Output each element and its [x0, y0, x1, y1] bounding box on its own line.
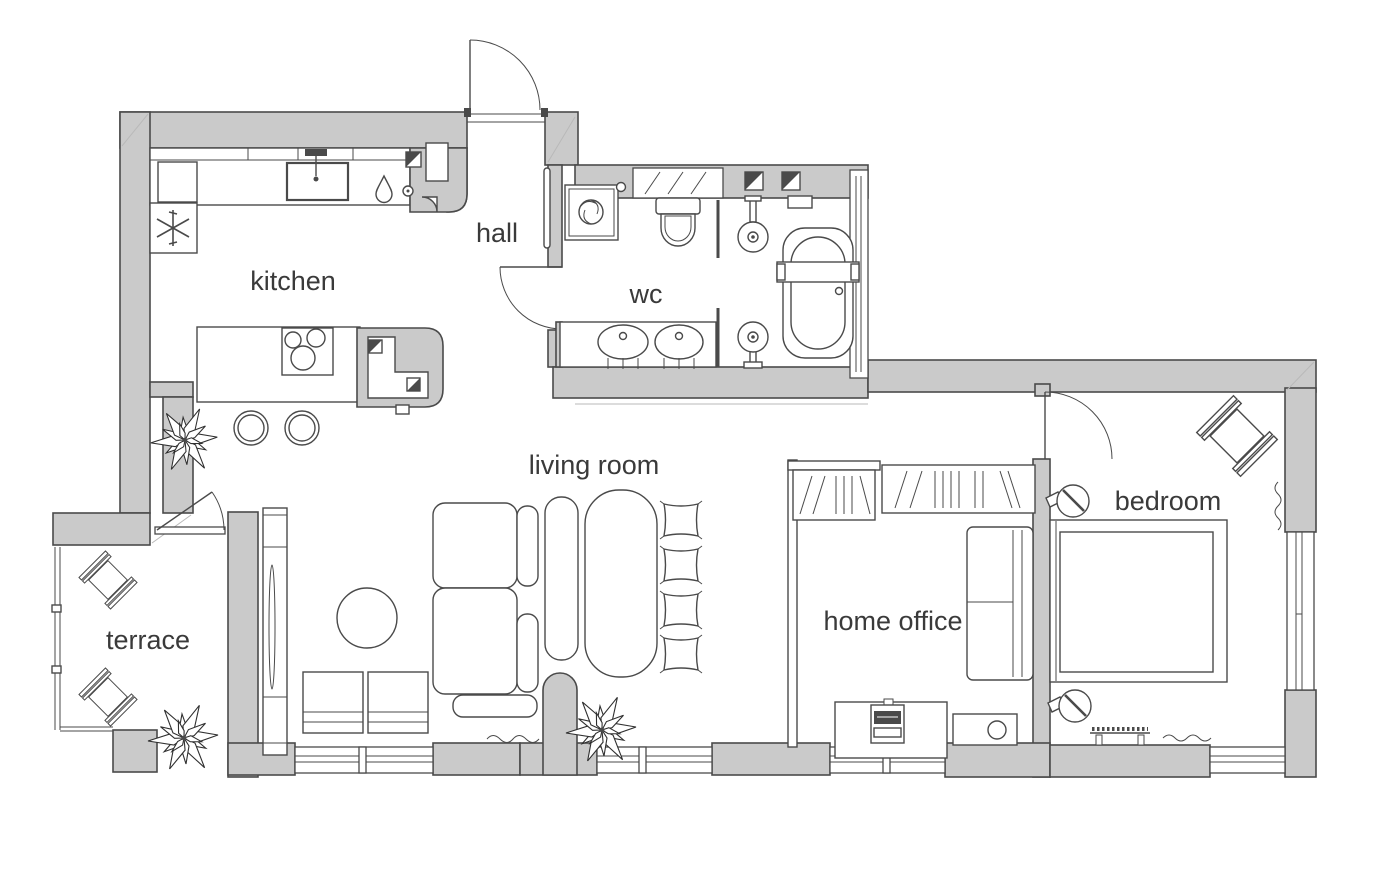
wall-terrace-right — [228, 512, 258, 777]
curtain-squiggle-icon — [1275, 482, 1281, 530]
bedroom-door-jamb — [1035, 384, 1050, 396]
island-counter — [357, 328, 443, 414]
wall-right-upper — [1285, 388, 1316, 532]
office-sofa — [967, 527, 1033, 680]
living-room-fixtures — [263, 490, 702, 763]
corner-sofa — [433, 503, 538, 717]
wall-wc-bottom — [553, 367, 868, 398]
wc-fixtures — [556, 172, 859, 369]
wall-bottom-b — [433, 743, 520, 775]
wall-bottom-e — [945, 743, 1050, 777]
wall-pillar-rounded — [543, 673, 577, 775]
wc-door-icon — [500, 267, 562, 329]
wall-right-lower — [1285, 690, 1316, 777]
wall-bottom-d — [712, 743, 830, 775]
shower-icon — [738, 322, 768, 368]
floor-plan-drawing: kitchen hall wc living room terrace home… — [0, 0, 1380, 884]
wall-niche — [788, 196, 812, 208]
vent-marker-icon — [782, 172, 800, 190]
wall-lamp-icon — [1048, 690, 1091, 722]
rug-squiggle-icon — [1163, 735, 1211, 741]
toilet-icon — [656, 198, 700, 246]
office-top-wall — [788, 461, 880, 470]
wall-terrace-bottom-pier — [113, 730, 157, 772]
office-cabinet — [953, 714, 1017, 745]
wall-left-step — [150, 382, 193, 397]
bedroom-fixtures — [1046, 396, 1281, 745]
entry-door-icon — [464, 40, 548, 122]
kitchen-counter-bottom — [197, 327, 360, 402]
washing-machine-icon — [565, 183, 626, 241]
tv-icon — [269, 565, 275, 689]
double-bed — [1050, 520, 1227, 682]
mirror-icon — [544, 168, 550, 248]
shower-icon — [738, 196, 768, 252]
window-bedroom-east — [1287, 532, 1314, 690]
plant-icon — [148, 703, 218, 771]
floor-cushions — [660, 501, 702, 673]
label-home-office: home office — [823, 606, 962, 636]
label-bedroom: bedroom — [1115, 486, 1222, 516]
floor-plan-canvas: kitchen hall wc living room terrace home… — [0, 0, 1380, 884]
label-terrace: terrace — [106, 625, 190, 655]
bedroom-door-icon — [1045, 392, 1112, 459]
window-bedroom-south — [1210, 747, 1285, 773]
armchair — [1197, 396, 1278, 477]
wall-left — [120, 112, 150, 513]
wall-kitchen-top — [120, 112, 467, 148]
laptop-icon — [871, 699, 904, 743]
hall-fixtures — [544, 168, 550, 248]
coffee-table — [337, 588, 397, 648]
wall-bottom-bedroom — [1050, 745, 1210, 777]
bedroom-bench — [1090, 729, 1150, 745]
wall-top-right-wing — [868, 360, 1316, 392]
marker-icon — [406, 152, 421, 167]
wall-terrace-top — [53, 513, 150, 545]
label-living-room: living room — [529, 450, 660, 480]
window-wc-glass-partition — [633, 168, 723, 198]
label-wc: wc — [629, 279, 663, 309]
kitchen-tall-cabinet — [158, 162, 197, 202]
lounge-chair — [79, 551, 137, 609]
window-living-1 — [295, 747, 433, 773]
label-hall: hall — [476, 218, 518, 248]
hob-icon — [282, 328, 333, 375]
poufs — [303, 672, 428, 733]
kitchen-fixtures — [150, 143, 467, 472]
desk — [835, 699, 947, 758]
fridge-freezer-icon — [150, 203, 197, 253]
double-basin — [556, 322, 716, 369]
wardrobe — [793, 465, 1035, 520]
kitchen-wall-cabinet — [426, 143, 448, 181]
bathtub-icon — [777, 228, 859, 358]
tv-unit — [263, 508, 287, 755]
pipe-dot-icon — [407, 190, 410, 193]
label-kitchen: kitchen — [250, 266, 336, 296]
bar-stools — [234, 411, 319, 445]
dining-table — [585, 490, 657, 677]
rug-squiggle-icon — [487, 736, 539, 743]
wall-lamp-icon — [1046, 485, 1089, 517]
lounge-chair — [79, 668, 137, 726]
bench — [545, 497, 578, 660]
vent-marker-icon — [745, 172, 763, 190]
